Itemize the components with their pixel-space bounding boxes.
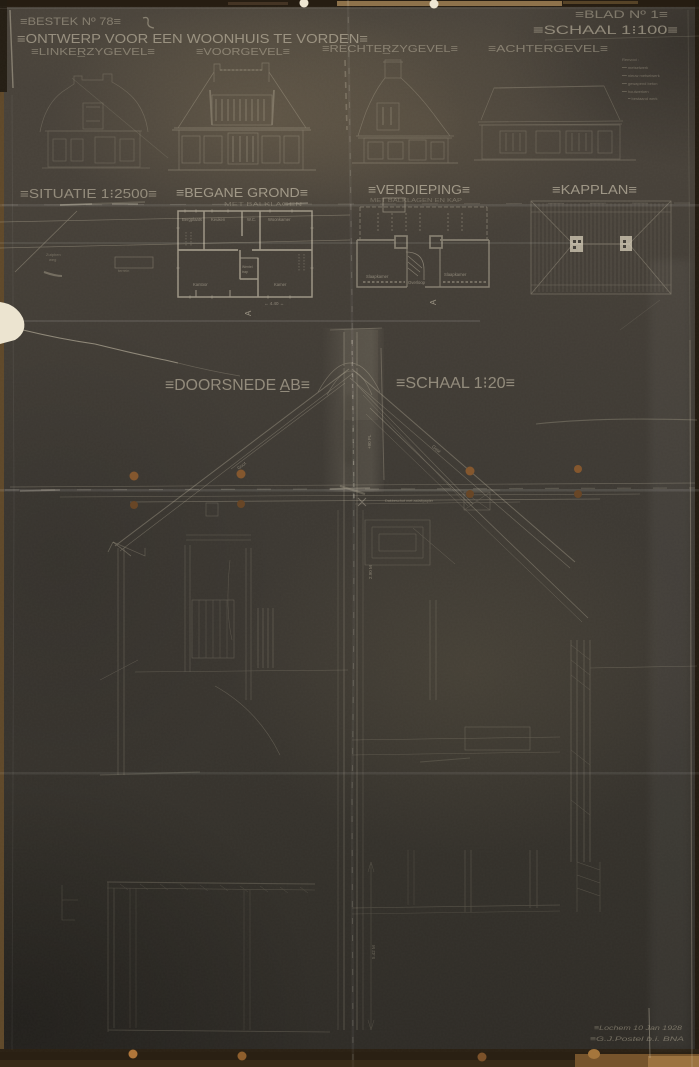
svg-text:A: A <box>244 310 253 316</box>
svg-text:≡SCHAAL 1⁝100≡: ≡SCHAAL 1⁝100≡ <box>533 23 678 37</box>
svg-text:W.C.: W.C. <box>247 217 256 222</box>
svg-text:Bergplaats: Bergplaats <box>182 217 202 222</box>
svg-text:Kamer: Kamer <box>274 282 287 287</box>
svg-text:A: A <box>429 299 438 305</box>
svg-text:Woonkamer: Woonkamer <box>268 217 291 222</box>
svg-text:↔ 4.40 ↔: ↔ 4.40 ↔ <box>264 301 284 306</box>
svg-text:≡BLAD Nº 1≡: ≡BLAD Nº 1≡ <box>575 9 668 21</box>
svg-text:━ bestaand werk: ━ bestaand werk <box>627 96 658 101</box>
svg-text:trap: trap <box>242 270 248 274</box>
svg-text:≡BEGANE GROND≡: ≡BEGANE GROND≡ <box>176 185 308 200</box>
svg-text:≡DOORSNEDE A̲B≡: ≡DOORSNEDE A̲B≡ <box>165 377 310 394</box>
svg-text:≡VERDIEPING≡: ≡VERDIEPING≡ <box>368 182 470 197</box>
svg-text:5.42 M: 5.42 M <box>371 945 376 959</box>
svg-text:Renvooi :: Renvooi : <box>622 57 639 62</box>
svg-text:≡ONTWERP VOOR EEN WOONHUIS TE: ≡ONTWERP VOOR EEN WOONHUIS TE VORDEN≡ <box>17 32 368 46</box>
svg-text:Wentel: Wentel <box>242 265 253 269</box>
svg-text:+90 PL: +90 PL <box>367 434 372 449</box>
svg-text:Kantoor: Kantoor <box>193 282 208 287</box>
svg-text:Overloop: Overloop <box>408 280 426 285</box>
svg-text:2.90 M: 2.90 M <box>368 565 373 579</box>
svg-text:≡G.J.Postel b.i. BNA: ≡G.J.Postel b.i. BNA <box>590 1036 684 1043</box>
svg-text:≡ACHTERGEVEL≡: ≡ACHTERGEVEL≡ <box>488 43 608 55</box>
svg-text:MET BALKLAGEN EN KAP: MET BALKLAGEN EN KAP <box>370 198 463 204</box>
svg-text:terrein: terrein <box>118 268 129 273</box>
svg-text:Dakbeschot met asfaltpapier: Dakbeschot met asfaltpapier <box>385 499 434 503</box>
svg-text:≡SCHAAL 1⁝20≡: ≡SCHAAL 1⁝20≡ <box>396 375 515 392</box>
svg-text:≡RECHTER̲ZYGEVEL≡: ≡RECHTER̲ZYGEVEL≡ <box>322 43 458 55</box>
svg-text:━━ metselwerk: ━━ metselwerk <box>621 65 648 70</box>
svg-text:≡Lochem 10 Jan 1928: ≡Lochem 10 Jan 1928 <box>594 1025 683 1032</box>
svg-text:≡VOORGEVEL≡: ≡VOORGEVEL≡ <box>196 46 290 58</box>
svg-text:━━ houtwerken: ━━ houtwerken <box>621 89 649 94</box>
svg-text:≡LINKER̲ZYGEVEL≡: ≡LINKER̲ZYGEVEL≡ <box>31 46 155 58</box>
svg-text:━━ gewapend beton: ━━ gewapend beton <box>621 81 658 86</box>
svg-text:≡BESTEK Nº 78≡: ≡BESTEK Nº 78≡ <box>20 16 121 28</box>
svg-text:Slaapkamer: Slaapkamer <box>366 274 389 279</box>
svg-text:≡KAPPLAN≡: ≡KAPPLAN≡ <box>552 182 637 197</box>
svg-text:weg: weg <box>49 257 56 262</box>
svg-text:━━ nieuw metselwerk: ━━ nieuw metselwerk <box>621 73 660 78</box>
svg-text:Keuken: Keuken <box>211 217 226 222</box>
svg-text:Slaapkamer: Slaapkamer <box>444 272 467 277</box>
svg-text:MET BALKLAGEN: MET BALKLAGEN <box>224 202 303 208</box>
svg-text:≡SITUATIE 1⁝2500≡: ≡SITUATIE 1⁝2500≡ <box>20 187 157 201</box>
